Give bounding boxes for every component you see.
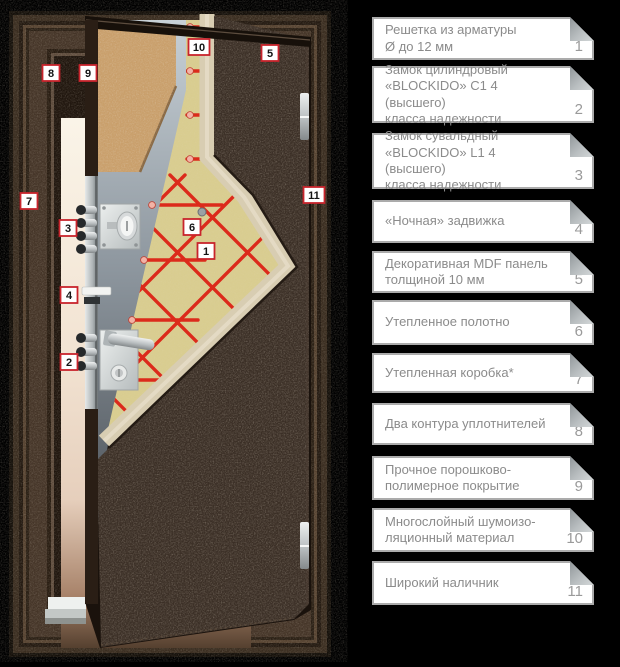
marker-8: 8	[43, 65, 60, 81]
cylinder-lock	[100, 204, 140, 249]
svg-text:4: 4	[66, 290, 73, 302]
marker-9: 9	[80, 65, 97, 81]
marker-7: 7	[21, 193, 38, 209]
screw	[198, 208, 206, 216]
legend-item-label: Многослойный шумоизо- ляционный материал	[374, 514, 570, 547]
legend-item-label: Решетка из арматуры Ø до 12 мм	[374, 22, 551, 55]
marker-4: 4	[61, 287, 78, 303]
legend-item-11: Широкий наличник11	[372, 561, 594, 605]
svg-text:11: 11	[308, 190, 320, 202]
legend-item-label: Утепленная коробка*	[374, 365, 548, 381]
legend-item-9: Прочное порошково- полимерное покрытие9	[372, 456, 594, 500]
marker-5: 5	[262, 45, 279, 61]
hinge-bottom	[300, 522, 309, 569]
legend: Решетка из арматуры Ø до 12 мм1 Замок ци…	[372, 0, 596, 662]
door-cutaway-illustration: 1 2 3 4 5 6 7 8 9 10 11	[0, 0, 370, 662]
deadbolts-lower	[76, 333, 97, 371]
legend-item-label: Утепленное полотно	[374, 314, 544, 330]
svg-text:7: 7	[26, 196, 32, 208]
marker-3: 3	[60, 220, 77, 236]
hinge-top	[300, 93, 309, 140]
legend-item-3: Замок сувальдный «BLOCKIDO» L1 4 (высшег…	[372, 133, 594, 189]
legend-item-5: Декоративная MDF панель толщиной 10 мм5	[372, 251, 594, 293]
svg-text:10: 10	[193, 42, 205, 54]
legend-item-1: Решетка из арматуры Ø до 12 мм1	[372, 17, 594, 60]
threshold-sill	[45, 597, 86, 624]
svg-text:9: 9	[85, 68, 91, 80]
svg-text:1: 1	[203, 246, 209, 258]
svg-text:6: 6	[189, 222, 195, 234]
legend-item-number: 6	[575, 323, 583, 340]
legend-item-number: 9	[575, 478, 583, 495]
legend-item-number: 10	[566, 530, 583, 547]
legend-item-label: Замок цилиндровый «BLOCKIDO» C1 4 (высше…	[374, 62, 592, 128]
legend-item-8: Два контура уплотнителей8	[372, 403, 594, 445]
svg-text:8: 8	[48, 68, 54, 80]
legend-item-4: «Ночная» задвижка4	[372, 200, 594, 243]
legend-item-number: 3	[575, 167, 583, 184]
legend-item-2: Замок цилиндровый «BLOCKIDO» C1 4 (высше…	[372, 66, 594, 123]
legend-item-number: 2	[575, 101, 583, 118]
legend-item-7: Утепленная коробка*7	[372, 353, 594, 393]
legend-item-label: «Ночная» задвижка	[374, 213, 538, 229]
legend-item-number: 11	[567, 583, 583, 600]
door-cutaway-svg: 1 2 3 4 5 6 7 8 9 10 11	[0, 0, 370, 662]
svg-text:3: 3	[65, 223, 71, 235]
marker-11: 11	[304, 187, 325, 203]
svg-text:5: 5	[267, 48, 273, 60]
leaf-lock-edge	[85, 20, 98, 604]
legend-item-6: Утепленное полотно6	[372, 300, 594, 345]
marker-1: 1	[198, 243, 215, 259]
legend-item-label: Замок сувальдный «BLOCKIDO» L1 4 (высшег…	[374, 128, 592, 194]
legend-item-label: Декоративная MDF панель толщиной 10 мм	[374, 256, 582, 289]
legend-item-label: Широкий наличник	[374, 575, 533, 591]
marker-2: 2	[61, 354, 78, 370]
marker-10: 10	[189, 39, 210, 55]
svg-text:2: 2	[66, 357, 72, 369]
legend-item-label: Прочное порошково- полимерное покрытие	[374, 462, 553, 495]
legend-item-label: Два контура уплотнителей	[374, 416, 579, 432]
marker-6: 6	[184, 219, 201, 235]
legend-item-10: Многослойный шумоизо- ляционный материал…	[372, 508, 594, 552]
